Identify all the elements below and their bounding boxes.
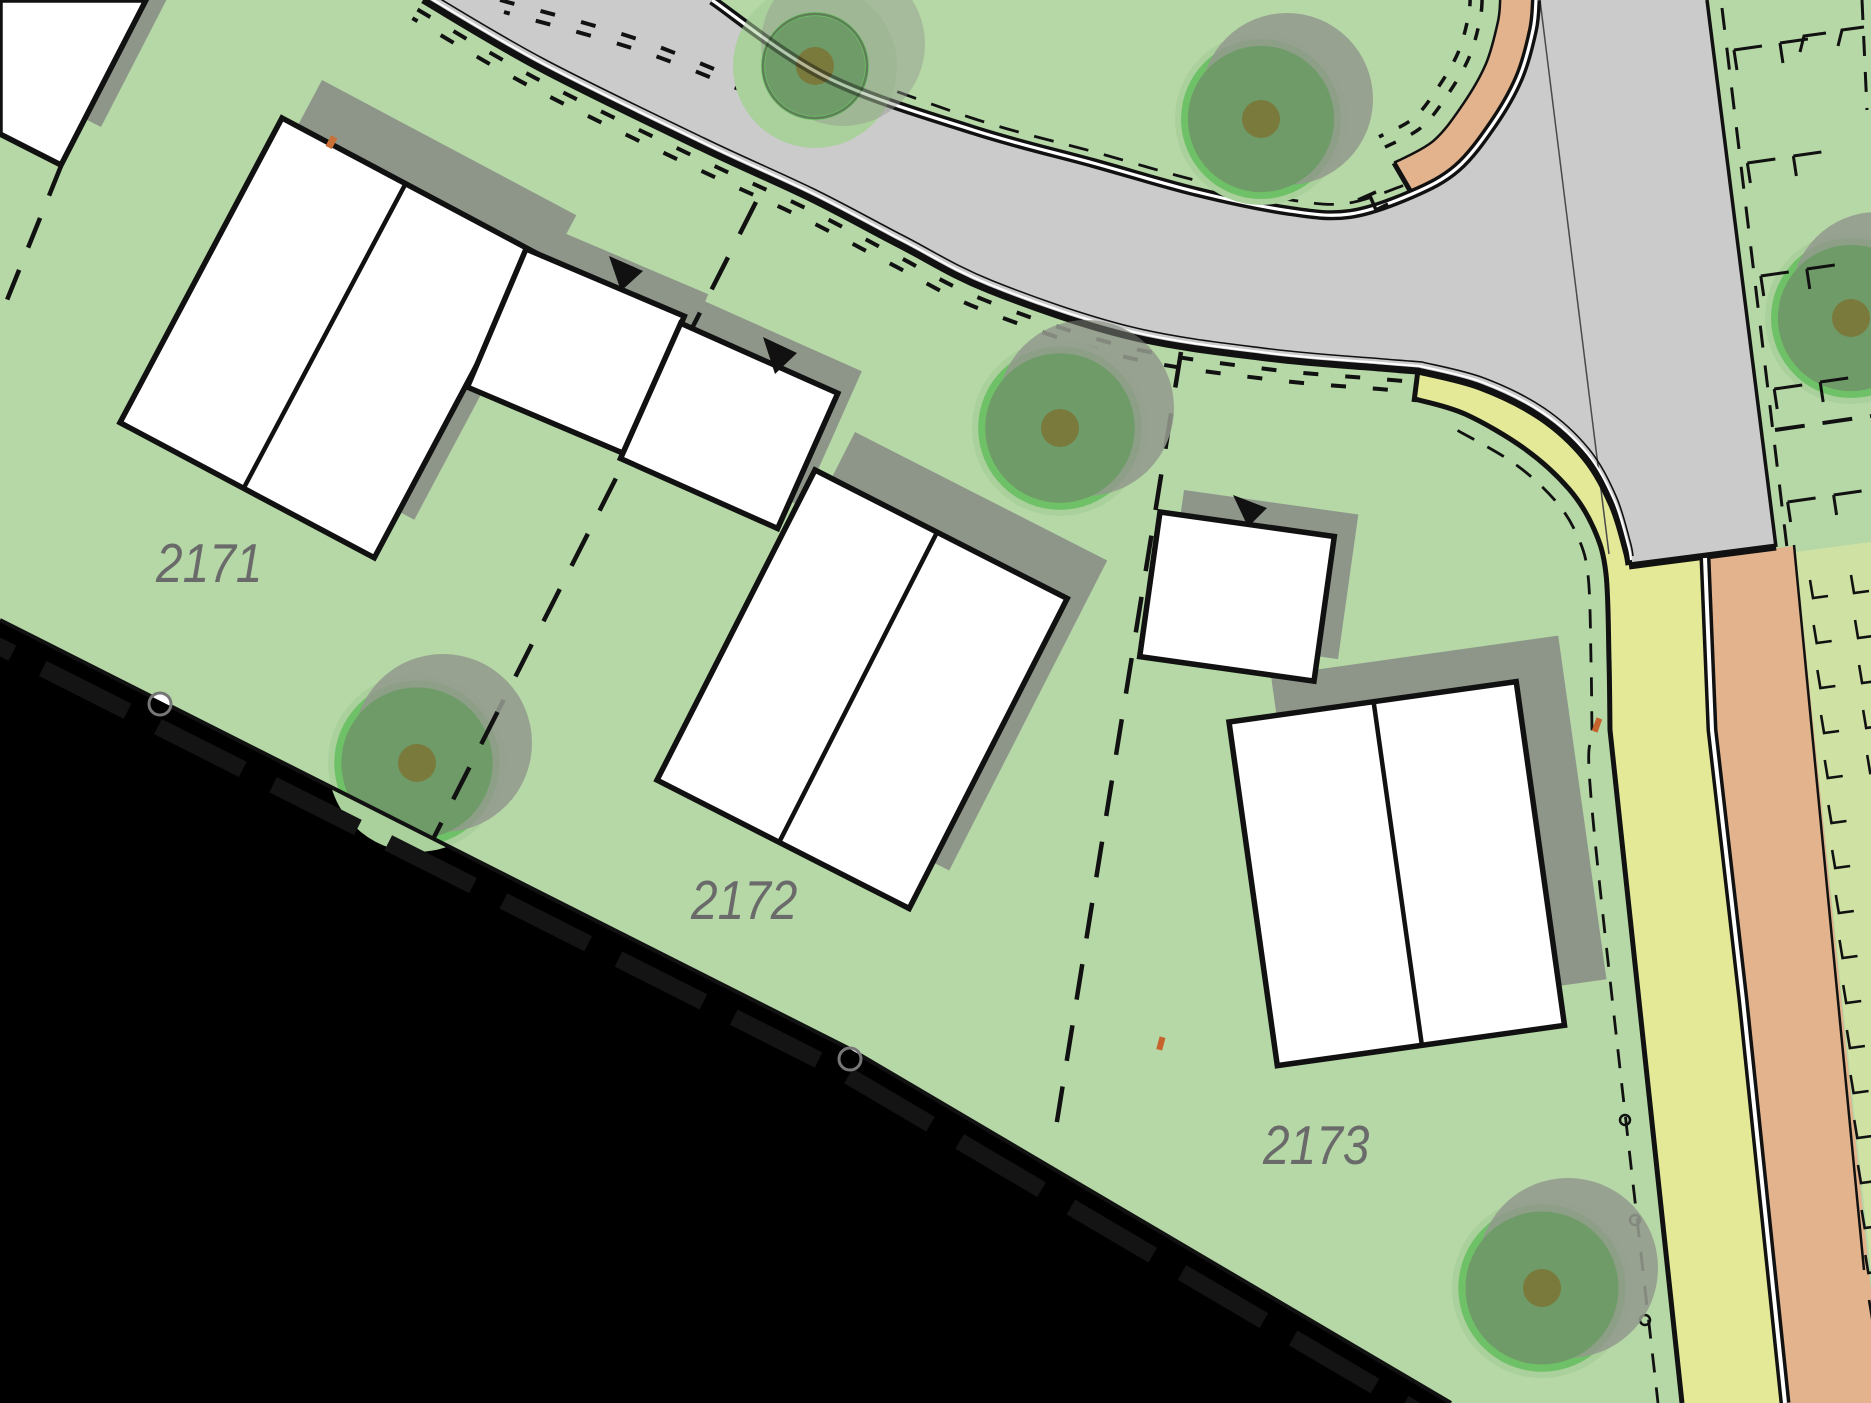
svg-text:2173: 2173 — [1262, 1114, 1370, 1176]
svg-text:2171: 2171 — [155, 532, 262, 594]
svg-text:2172: 2172 — [690, 869, 797, 931]
